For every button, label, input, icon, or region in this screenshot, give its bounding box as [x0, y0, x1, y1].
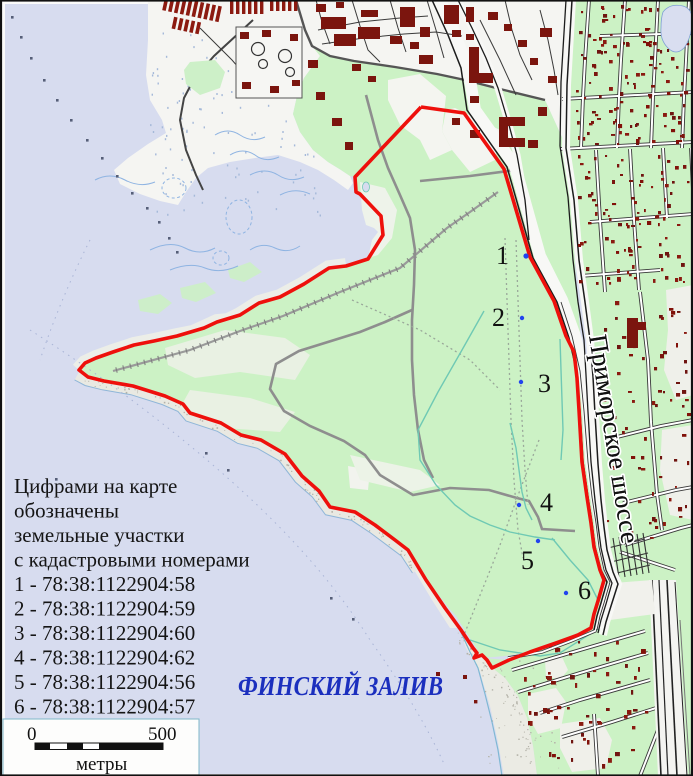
svg-text:обозначены: обозначены [14, 499, 119, 523]
svg-text:2 - 78:38:1122904:59: 2 - 78:38:1122904:59 [14, 597, 195, 621]
svg-text:3: 3 [538, 369, 551, 398]
svg-text:Цифрами на карте: Цифрами на карте [14, 474, 177, 498]
svg-text:1 - 78:38:1122904:58: 1 - 78:38:1122904:58 [14, 572, 195, 596]
svg-text:5 - 78:38:1122904:56: 5 - 78:38:1122904:56 [14, 670, 195, 694]
svg-text:0: 0 [27, 724, 37, 745]
svg-text:4 - 78:38:1122904:62: 4 - 78:38:1122904:62 [14, 646, 195, 670]
svg-text:6: 6 [578, 576, 591, 605]
svg-text:3 - 78:38:1122904:60: 3 - 78:38:1122904:60 [14, 621, 195, 645]
svg-text:ФИНСКИЙ ЗАЛИВ: ФИНСКИЙ ЗАЛИВ [238, 670, 443, 701]
svg-text:6 - 78:38:1122904:57: 6 - 78:38:1122904:57 [14, 695, 195, 719]
svg-text:метры: метры [76, 754, 127, 775]
svg-text:5: 5 [521, 546, 534, 575]
svg-text:2: 2 [492, 303, 505, 332]
svg-text:500: 500 [148, 724, 177, 745]
svg-text:4: 4 [540, 488, 553, 517]
svg-text:1: 1 [496, 241, 509, 270]
svg-text:с кадастровыми номерами: с кадастровыми номерами [14, 548, 250, 572]
svg-text:земельные участки: земельные участки [14, 523, 185, 547]
